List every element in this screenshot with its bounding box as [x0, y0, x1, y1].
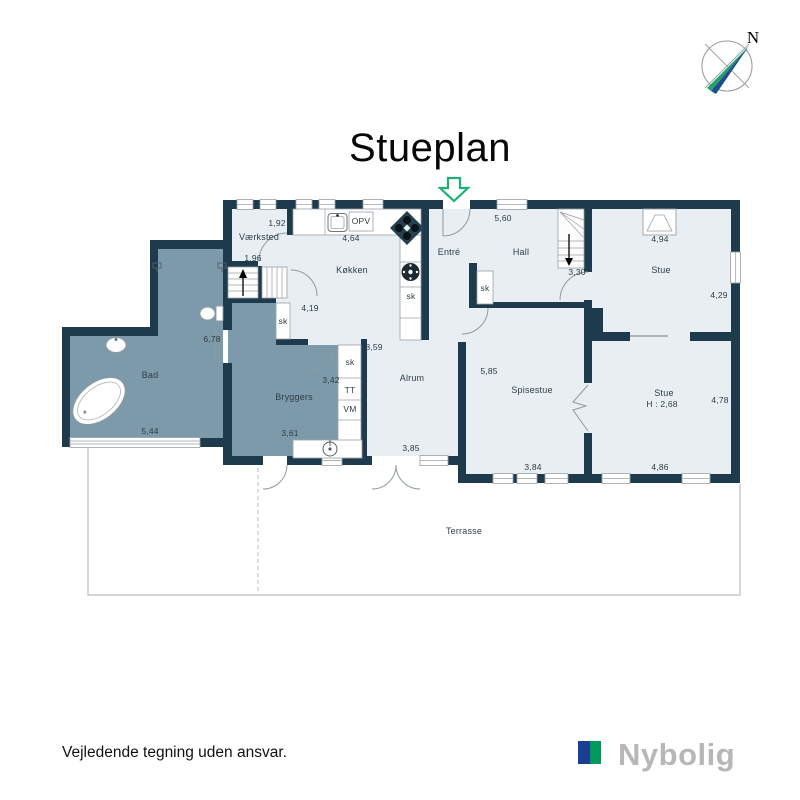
compass-icon [702, 41, 752, 94]
stairs-basement-icon [228, 267, 287, 298]
brand-name: Nybolig [618, 737, 735, 773]
dim-stairs: 3,30 [568, 267, 585, 277]
compass-needle-blue [711, 46, 749, 94]
logo-blue-half [578, 741, 590, 764]
dim-stue-bottom-h: 4,78 [711, 395, 728, 405]
dim-vaerksted-w: 1,92 [268, 218, 285, 228]
dim-bryggers-w: 3,42 [322, 375, 339, 385]
oven-icon [402, 263, 420, 281]
toilet-icon [200, 306, 223, 321]
fixture-label-sk-hall: sk [481, 283, 490, 293]
fixture-label-sk-koekken: sk [279, 316, 288, 326]
dim-bad-h: 6,78 [203, 334, 220, 344]
floor-plan-drawing [0, 0, 800, 800]
room-label-entre: Entré [438, 247, 461, 257]
fixture-label-sk-counter: sk [407, 291, 416, 301]
room-label-terrasse: Terrasse [446, 526, 482, 536]
room-label-bad: Bad [142, 370, 159, 380]
dim-stue-top-h: 4,29 [710, 290, 727, 300]
logo-green-half [590, 741, 602, 764]
fixture-label-vm: VM [343, 404, 356, 414]
dim-bryggers-w2: 3,61 [281, 428, 298, 438]
dim-hall-w: 5,60 [494, 213, 511, 223]
dim-alrum-w: 3,85 [402, 443, 419, 453]
room-label-hall: Hall [513, 247, 529, 257]
dim-stue-top-w: 4,94 [651, 234, 668, 244]
room-label-bryggers: Bryggers [275, 392, 313, 402]
brand-logo: Nybolig [578, 737, 735, 773]
dim-stue-bottom-w: 4,86 [651, 462, 668, 472]
nybolig-logo-icon [578, 741, 601, 764]
entrance-arrow-icon [440, 178, 468, 201]
fireplace-icon [643, 209, 676, 235]
room-label-vaerksted: Værksted [239, 232, 279, 242]
dim-koekken-h: 4,19 [301, 303, 318, 313]
floorplan-page: Stueplan N Værksted 1,92 1,96 OPV 4,64 K… [0, 0, 800, 800]
fixture-label-opv: OPV [352, 216, 371, 226]
dim-vaerksted-h: 1,96 [244, 253, 261, 263]
dim-bad-w: 5,44 [141, 426, 158, 436]
dim-spisestue-h: 5,85 [480, 366, 497, 376]
room-label-alrum: Alrum [400, 373, 425, 383]
room-label-koekken: Køkken [336, 265, 368, 275]
kitchen-sink-icon [328, 214, 347, 232]
note-stue-height: H : 2,68 [646, 399, 677, 409]
fixture-label-tt: TT [345, 385, 356, 395]
room-label-stue-top: Stue [651, 265, 670, 275]
dim-koekken-w: 4,64 [342, 233, 359, 243]
fixture-label-sk-bryggers: sk [346, 357, 355, 367]
bathroom-sink-icon [106, 338, 126, 353]
dim-alrum-h: 8,59 [365, 342, 382, 352]
page-title: Stueplan [349, 126, 511, 171]
room-label-spisestue: Spisestue [511, 385, 552, 395]
stairs-main-icon [558, 209, 584, 268]
disclaimer-text: Vejledende tegning uden ansvar. [62, 744, 287, 762]
compass-north-label: N [747, 28, 759, 48]
room-label-stue-bottom: Stue [654, 388, 673, 398]
dim-spisestue-w: 3,84 [524, 462, 541, 472]
